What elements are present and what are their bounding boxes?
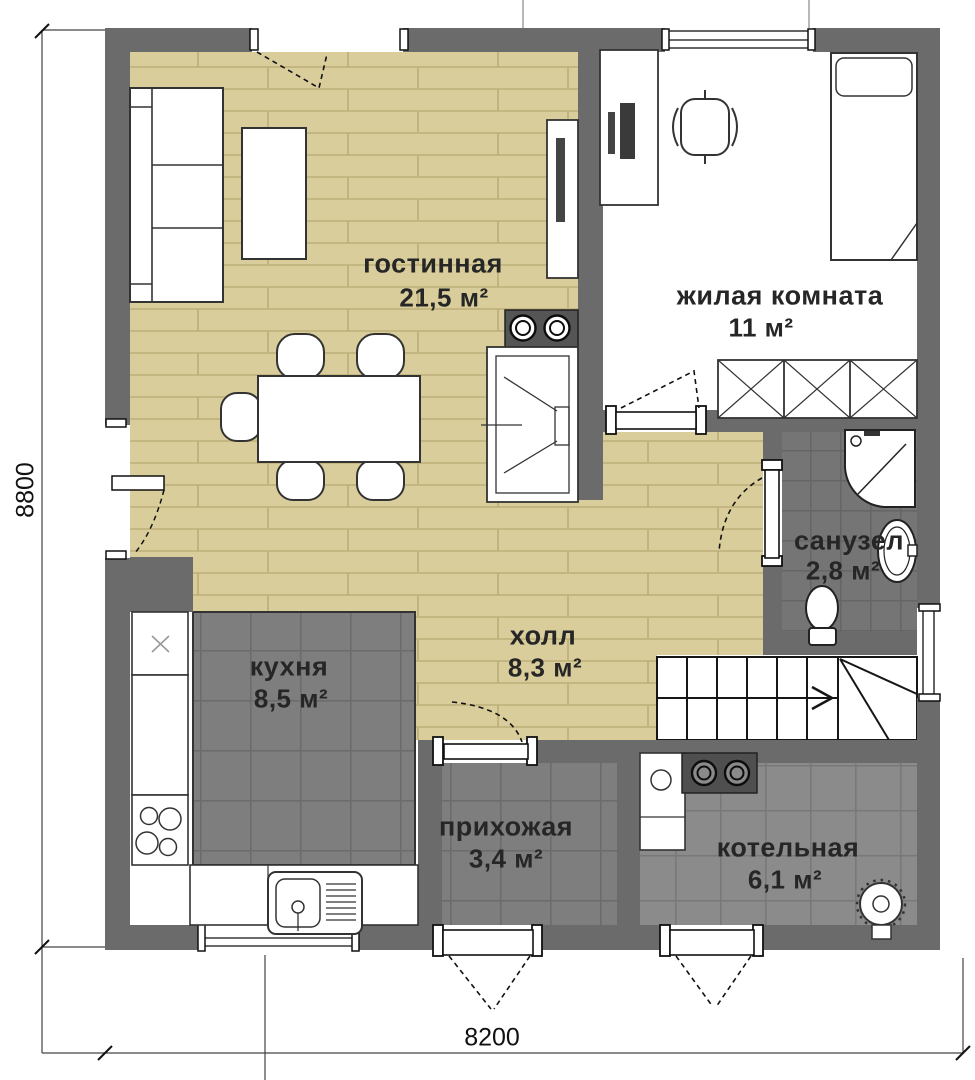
pc-icon	[620, 103, 635, 159]
dining-chair	[277, 334, 324, 379]
window-stairs-right	[919, 604, 940, 701]
extension-lines	[523, 0, 809, 28]
stair-landing	[838, 657, 917, 740]
dining-chair	[277, 460, 324, 500]
height-dimension-line	[42, 30, 105, 1053]
toilet	[806, 586, 838, 645]
room-label-boiler: котельная	[717, 833, 860, 864]
room-area-bedroom: 11 м²	[728, 313, 793, 344]
fridge	[132, 612, 188, 675]
room-area-living: 21,5 м²	[399, 283, 488, 314]
room-area-bathroom: 2,8 м²	[806, 556, 880, 587]
room-label-bathroom: санузел	[794, 526, 904, 557]
computer-desk	[600, 50, 658, 205]
monitor-icon	[608, 112, 615, 154]
wardrobe	[718, 360, 917, 418]
boiler-counter	[640, 753, 685, 850]
room-area-boiler: 6,1 м²	[748, 865, 822, 896]
dimension-width-label: 8200	[464, 1024, 520, 1053]
room-label-bedroom: жилая комната	[677, 281, 884, 312]
room-area-hall: 8,3 м²	[508, 653, 582, 684]
bed	[831, 53, 917, 260]
room-area-entry: 3,4 м²	[469, 844, 543, 875]
door-boiler	[660, 925, 763, 1007]
boiler-stove	[682, 753, 757, 793]
staircase	[657, 657, 917, 740]
entrance-door	[433, 925, 542, 1009]
kitchen-tile-floor	[193, 612, 415, 865]
floor-plan: гостинная 21,5 м² жилая комната 11 м² са…	[0, 0, 975, 1080]
room-area-kitchen: 8,5 м²	[254, 684, 328, 715]
dining-chair	[221, 393, 261, 441]
room-label-living: гостинная	[363, 249, 503, 280]
tv-icon	[556, 138, 565, 222]
dining-chair	[357, 334, 404, 379]
dining-chair	[357, 460, 404, 500]
sofa	[130, 88, 223, 302]
coffee-table	[242, 128, 306, 259]
kitchen-stove	[132, 795, 188, 865]
kitchen-counter	[132, 675, 188, 795]
dimension-height-label: 8800	[12, 462, 41, 518]
dining-table	[258, 376, 420, 462]
room-label-hall: холл	[510, 621, 576, 652]
window-bedroom-top	[662, 29, 815, 50]
room-label-entry: прихожая	[439, 812, 573, 843]
room-label-kitchen: кухня	[250, 652, 328, 683]
tv-stand	[547, 120, 578, 278]
width-dimension-line	[42, 955, 963, 1080]
kitchen-sink-counter	[190, 865, 418, 934]
